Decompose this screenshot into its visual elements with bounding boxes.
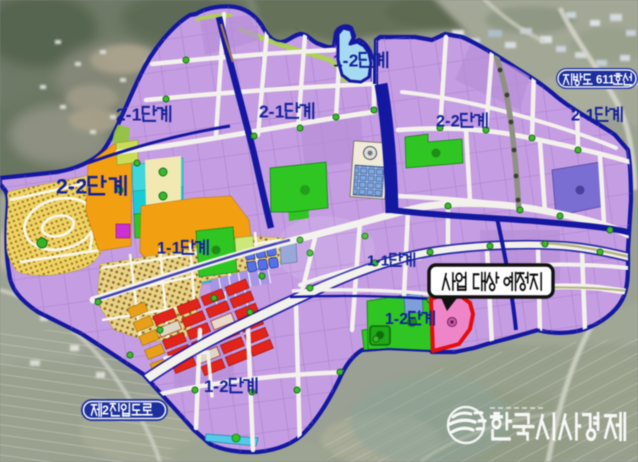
svg-text:2: 2: [56, 175, 68, 199]
svg-text:1: 1: [367, 252, 375, 269]
svg-text:1: 1: [381, 252, 389, 269]
svg-text:-: -: [269, 101, 275, 121]
svg-text:-: -: [213, 377, 219, 396]
svg-text:-: -: [445, 112, 450, 130]
svg-text:1: 1: [172, 239, 181, 257]
svg-text:1: 1: [333, 50, 343, 70]
svg-text:1: 1: [385, 311, 394, 328]
svg-text:-: -: [166, 239, 171, 257]
svg-text:2: 2: [102, 404, 109, 418]
svg-text:2: 2: [436, 112, 445, 130]
svg-text:2: 2: [451, 112, 460, 130]
svg-text:-: -: [343, 50, 349, 70]
svg-text:-: -: [68, 175, 75, 199]
svg-text:-: -: [394, 311, 399, 328]
svg-text:2: 2: [219, 377, 228, 396]
svg-text:2: 2: [399, 311, 408, 328]
svg-text:-: -: [375, 252, 380, 269]
svg-text:1: 1: [157, 239, 166, 257]
svg-text:-: -: [580, 106, 585, 124]
svg-text:1: 1: [275, 101, 285, 121]
svg-text:2: 2: [349, 50, 359, 70]
svg-text:2: 2: [571, 106, 580, 124]
svg-text:2: 2: [116, 104, 126, 124]
svg-text:1: 1: [204, 377, 213, 396]
svg-text:2: 2: [259, 101, 269, 121]
svg-text:-: -: [126, 104, 132, 124]
svg-text:611: 611: [596, 75, 615, 87]
svg-text:1: 1: [586, 106, 595, 124]
svg-text:2: 2: [75, 175, 87, 199]
svg-text:1: 1: [132, 104, 142, 124]
